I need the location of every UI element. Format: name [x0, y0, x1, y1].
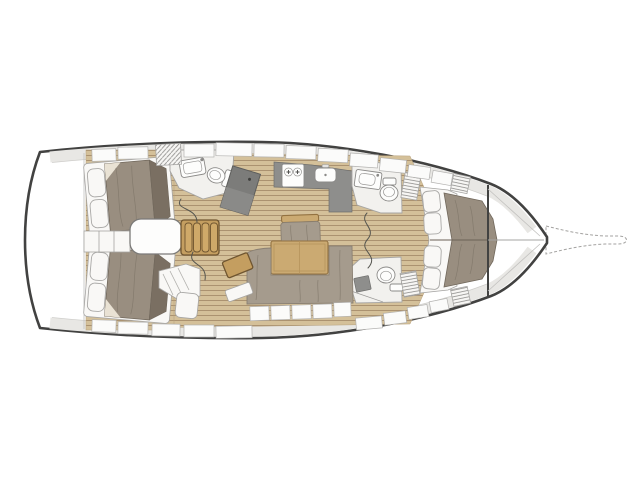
aft-head-sink	[179, 157, 207, 178]
pillow	[422, 190, 441, 213]
pillow	[423, 246, 441, 268]
pillow	[90, 252, 109, 281]
pillow	[423, 213, 441, 235]
companionway-steps	[181, 220, 219, 255]
bowsprit	[546, 226, 627, 254]
stove	[282, 164, 304, 187]
pillow	[87, 168, 106, 197]
forward-head-port-sink	[354, 169, 382, 189]
saloon-table	[271, 241, 328, 274]
pillow	[90, 199, 109, 228]
yacht-floor-plan	[0, 0, 640, 480]
shower-seat	[354, 275, 372, 292]
floor-plan-canvas	[0, 0, 640, 480]
forward-head-starboard	[350, 257, 403, 303]
pillow	[422, 267, 441, 290]
pillow	[87, 283, 106, 312]
forward-head-port-toilet	[380, 178, 398, 201]
